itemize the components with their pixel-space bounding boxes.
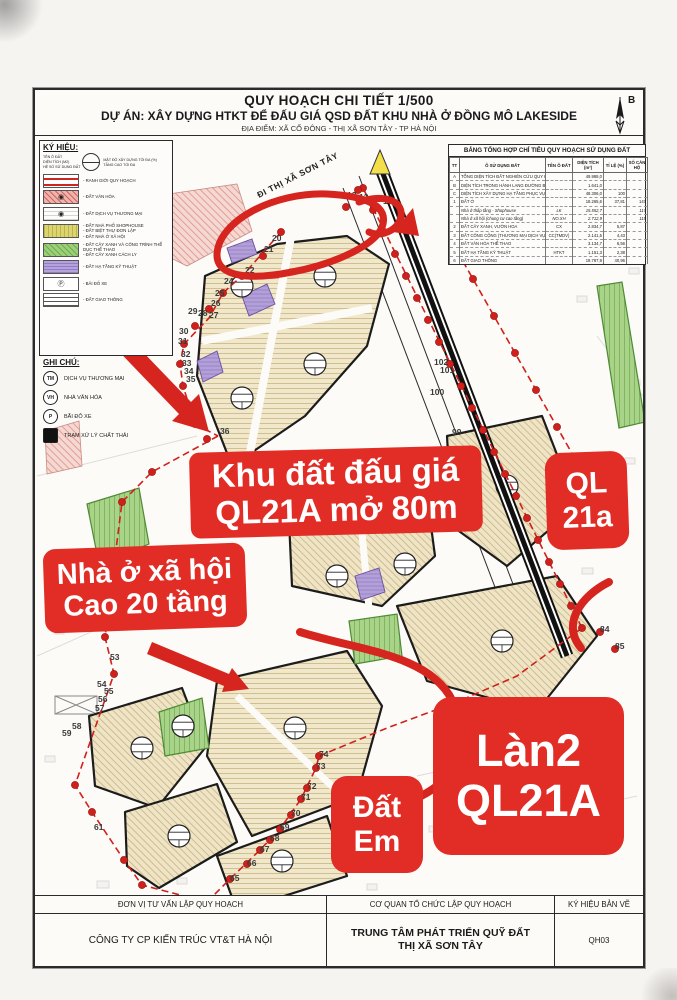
table-row: ATỔNG DIỆN TÍCH ĐẤT NGHIÊN CỨU QUY HOẠCH… — [450, 173, 648, 181]
lot-symbol — [491, 630, 513, 652]
boundary-swatch — [43, 174, 79, 188]
svg-text:B: B — [628, 95, 635, 106]
boundary-number: 28 — [198, 308, 208, 318]
lot-symbol — [284, 717, 306, 739]
boundary-number: 25 — [215, 288, 225, 298]
boundary-number: 102 — [434, 357, 448, 367]
boundary-number: 69 — [280, 822, 290, 832]
lot-symbol — [271, 850, 293, 872]
boundary-number: 30 — [179, 326, 189, 336]
table-row: 1ĐẤT Ở18.265,637,81147 — [450, 198, 648, 206]
notes-title: GHI CHÚ: — [43, 358, 193, 367]
table-row: 2ĐẤT CÂY XANH, VƯỜN HOACX2.834,75,87 — [450, 223, 648, 231]
boundary-number: 31 — [178, 336, 188, 346]
lot-symbol — [304, 353, 326, 375]
green-swatch — [43, 243, 79, 257]
table-row: 6ĐẤT GIAO THÔNG19.787,940,96 — [450, 256, 648, 264]
boundary-number: 26 — [211, 298, 221, 308]
boundary-number: 53 — [110, 652, 120, 662]
legend-panel: KÝ HIỆU: TÊN Ô ĐẤTDIỆN TÍCH (M2)HỆ SỐ SỬ… — [39, 140, 173, 356]
legend-item: - ĐẤT CÂY XANH VÀ CÔNG TRÌNH THỂ DỤC THỂ… — [43, 242, 169, 258]
note-icon: P — [43, 409, 58, 424]
legend-item: - ĐẤT GIAO THÔNG — [43, 293, 169, 307]
note-icon: ▪ — [43, 428, 58, 443]
table-row: Nhà ở xã hội (chung cư cao tầng)NO.XH2.7… — [450, 214, 648, 222]
boundary-number: 71 — [301, 792, 311, 802]
annotation-dat-em: ĐấtEm — [331, 776, 423, 873]
table-row: CDIỆN TÍCH XÂY DỰNG HẠ TẦNG PHỤC VỤ ĐẤU … — [450, 189, 648, 197]
lot-symbol — [326, 565, 348, 587]
table-row: 5ĐẤT HẠ TẦNG KỸ THUẬTHTKT1.151,32,38 — [450, 248, 648, 256]
note-item: PBÃI ĐỖ XE — [43, 409, 193, 424]
boundary-number: 65 — [230, 873, 240, 883]
boundary-number: 72 — [307, 781, 317, 791]
culvert — [55, 696, 97, 714]
parking-swatch: Ⓟ — [43, 277, 79, 291]
table-row: 3ĐẤT CÔNG CỘNG (THƯƠNG MẠI DỊCH VỤ)CC(TM… — [450, 231, 648, 239]
north-arrow: B — [606, 91, 640, 135]
boundary-number: 61 — [94, 822, 104, 832]
consultant-header: ĐƠN VỊ TƯ VẤN LẬP QUY HOẠCH — [35, 896, 327, 914]
project-name: DỰ ÁN: XÂY DỰNG HTKT ĐỂ ĐẤU GIÁ QSD ĐẤT … — [35, 109, 643, 123]
legend-item: - RANH GIỚI QUY HOẠCH — [43, 174, 169, 188]
boundary-number: 21 — [264, 244, 274, 254]
road-swatch — [43, 293, 79, 307]
note-icon: TM — [43, 371, 58, 386]
photo-corner-shadow — [0, 0, 43, 43]
legend-title: KÝ HIỆU: — [43, 143, 169, 152]
boundary-number: 74 — [319, 749, 329, 759]
title-block: QUY HOẠCH CHI TIẾT 1/500 DỰ ÁN: XÂY DỰNG… — [35, 90, 643, 136]
authority-name: TRUNG TÂM PHÁT TRIỂN QUỸ ĐẤTTHỊ XÃ SƠN T… — [327, 914, 555, 966]
legend-item: - ĐẤT HẠ TẦNG KỸ THUẬT — [43, 260, 169, 274]
table-row: Nhà ở thấp tầng - ShophouseLK15.552,7117 — [450, 206, 648, 214]
project-location: ĐỊA ĐIỂM: XÃ CỔ ĐÔNG - THỊ XÃ SƠN TÂY - … — [35, 124, 643, 133]
legend-item: ◉- ĐẤT DỊCH VỤ THƯƠNG MẠI — [43, 207, 169, 221]
lot-symbol — [168, 825, 190, 847]
legend-item: - ĐẤT NHÀ PHỐ SHOPHOUSE- ĐẤT BIỆT THỰ ĐƠ… — [43, 223, 169, 239]
land-use-summary-table: BẢNG TỔNG HỢP CHỈ TIÊU QUY HOẠCH SỬ DỤNG… — [448, 144, 646, 265]
table-row: BDIỆN TÍCH TRONG HÀNH LANG ĐƯỜNG BỘ1.641… — [450, 181, 648, 189]
social-arrow — [147, 642, 249, 692]
culture-swatch: ◉ — [43, 190, 79, 204]
planning-drawing-photo: ĐI THỊ XÃ SƠN TÂY 1011121320212223242526… — [0, 0, 677, 1000]
boundary-number: 20 — [272, 233, 282, 243]
lot-symbol-callout: TÊN Ô ĐẤTDIỆN TÍCH (M2)HỆ SỐ SỬ DỤNG ĐẤT… — [43, 153, 169, 171]
annotation-lan2-ql21a: Làn2QL21A — [433, 697, 624, 855]
drawing-title: QUY HOẠCH CHI TIẾT 1/500 — [35, 93, 643, 108]
commerce-swatch: ◉ — [43, 207, 79, 221]
lot-symbol — [131, 737, 153, 759]
legend-item: ◉- ĐẤT VĂN HÓA — [43, 190, 169, 204]
boundary-number: 99 — [452, 427, 462, 437]
note-icon: VH — [43, 390, 58, 405]
boundary-number: 24 — [224, 276, 234, 286]
lot-symbol — [231, 387, 253, 409]
boundary-number: 29 — [188, 306, 198, 316]
table-row: 4ĐẤT VĂN HÓA THỂ THAO3.134,76,56 — [450, 240, 648, 248]
authority-header: CƠ QUAN TỔ CHỨC LẬP QUY HOẠCH — [327, 896, 555, 914]
note-item: ▪TRẠM XỬ LÝ CHẤT THẢI — [43, 428, 193, 443]
footer-title-block: ĐƠN VỊ TƯ VẤN LẬP QUY HOẠCH CƠ QUAN TỔ C… — [35, 895, 643, 966]
boundary-number: 85 — [615, 641, 625, 651]
boundary-number: 68 — [270, 833, 280, 843]
residential-swatch — [43, 224, 79, 238]
boundary-number: 36 — [220, 426, 230, 436]
boundary-number: 84 — [600, 624, 610, 634]
legend-item: Ⓟ- BÃI ĐỖ XE — [43, 277, 169, 291]
notes-panel: GHI CHÚ: TMDỊCH VỤ THƯƠNG MẠIVHNHÀ VĂN H… — [43, 358, 193, 447]
sheet-code-header: KÝ HIỆU BẢN VẼ — [555, 896, 643, 914]
annotation-auction-land: Khu đất đấu giáQL21A mở 80m — [189, 445, 483, 539]
note-item: TMDỊCH VỤ THƯƠNG MẠI — [43, 371, 193, 386]
boundary-number: 59 — [62, 728, 72, 738]
boundary-number: 73 — [316, 761, 326, 771]
boundary-number: 57 — [95, 703, 105, 713]
boundary-number: 58 — [72, 721, 82, 731]
annotation-ql21a-road: QL21a — [544, 451, 629, 551]
lot-symbol — [394, 553, 416, 575]
annotation-social-housing: Nhà ở xã hộiCao 20 tầng — [43, 543, 248, 634]
boundary-number: 100 — [430, 387, 444, 397]
boundary-number: 70 — [291, 808, 301, 818]
sheet-code: QH03 — [555, 914, 643, 966]
road-direction-arrow — [370, 150, 390, 174]
boundary-number: 67 — [260, 844, 270, 854]
table-title: BẢNG TỔNG HỢP CHỈ TIÊU QUY HOẠCH SỬ DỤNG… — [449, 145, 645, 157]
technical-swatch — [43, 260, 79, 274]
boundary-number: 27 — [209, 310, 219, 320]
lot-symbol — [172, 715, 194, 737]
consultant-name: CÔNG TY CP KIẾN TRÚC VT&T HÀ NỘI — [35, 914, 327, 966]
boundary-number: 66 — [247, 858, 257, 868]
lot-symbol-glyph — [82, 153, 100, 171]
note-item: VHNHÀ VĂN HÓA — [43, 390, 193, 405]
photo-corner-shadow — [637, 968, 677, 1000]
